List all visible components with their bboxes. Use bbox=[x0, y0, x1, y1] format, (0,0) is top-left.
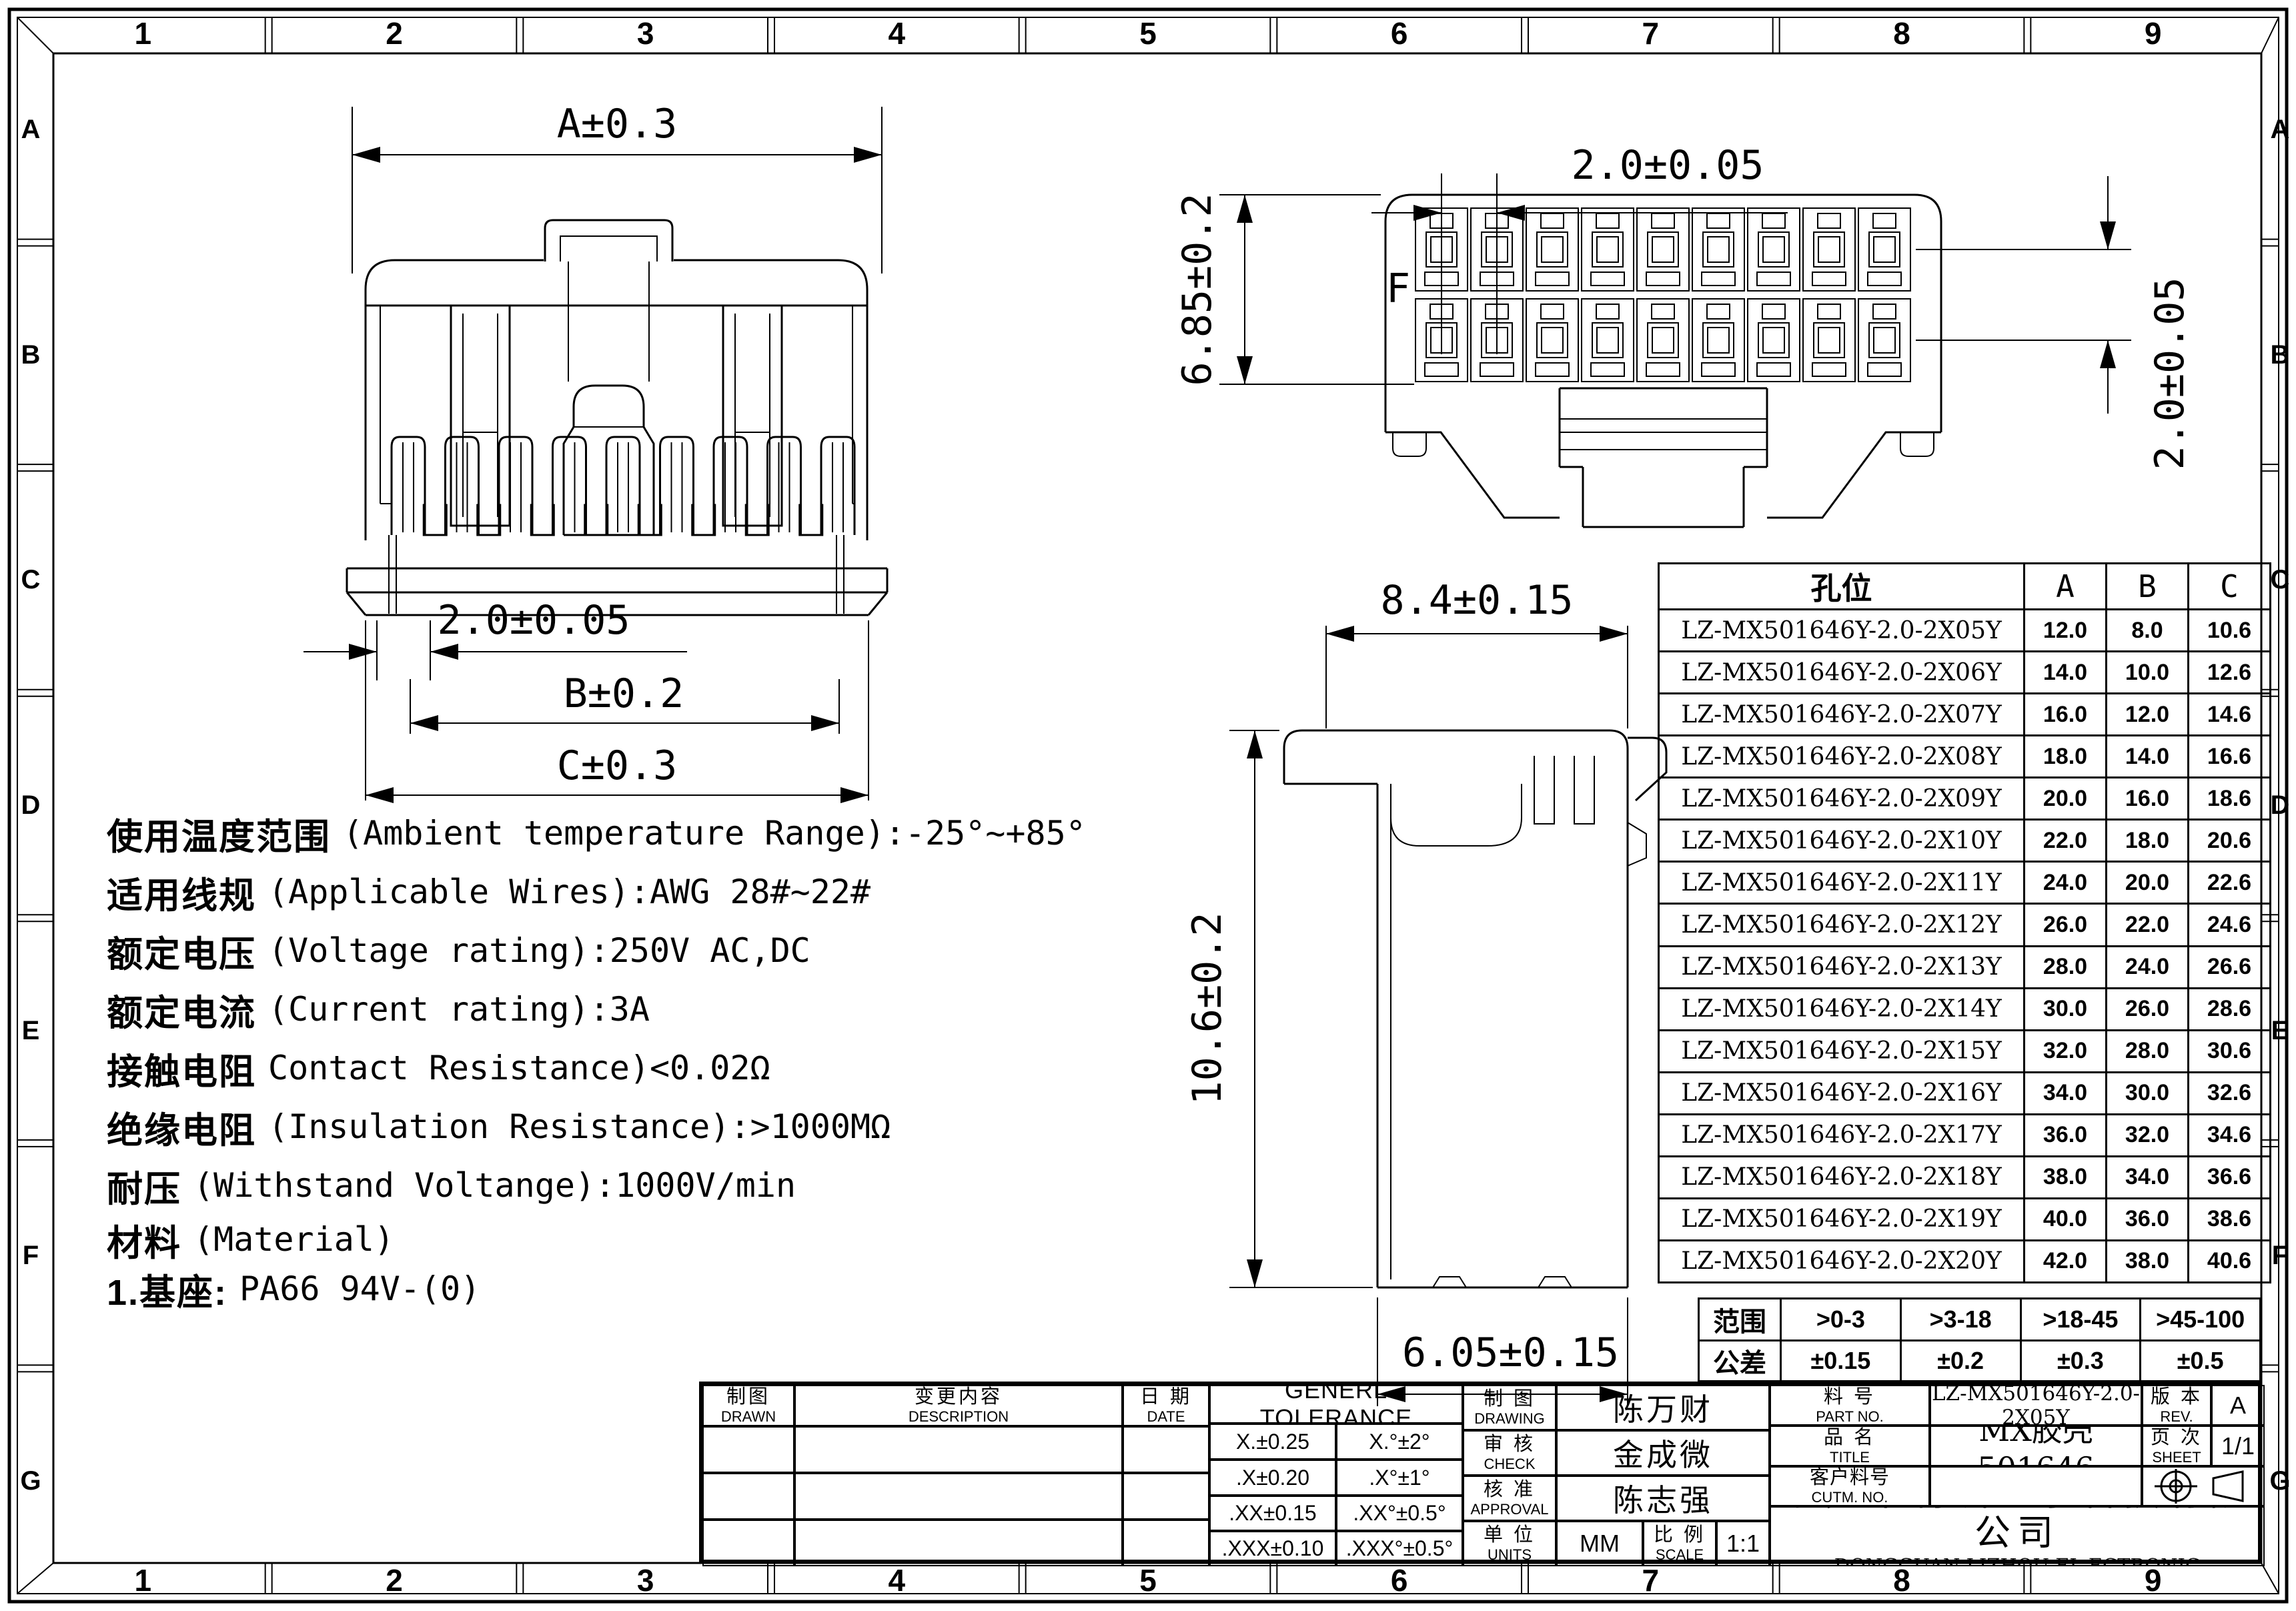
spec-label-zh: 额定电流 bbox=[107, 983, 256, 1036]
dim-b-cell: 16.0 bbox=[2107, 778, 2189, 820]
dim-c-cell: 20.6 bbox=[2189, 820, 2271, 862]
dim-c-cell: 26.6 bbox=[2189, 946, 2271, 988]
third-angle-projection-icon bbox=[2147, 1469, 2260, 1504]
dim-b-cell: 24.0 bbox=[2107, 946, 2189, 988]
side-dim-width: 8.4±0.15 bbox=[1377, 579, 1577, 622]
company-cell: 东莞市利洲电子科技有限公司 DONGGUAN LIZHOU EL ECTRONI… bbox=[1770, 1506, 2265, 1566]
spec-label-zh: 接触电阻 bbox=[107, 1042, 256, 1095]
spec-line: 1.基座:PA66 94V-(0) bbox=[107, 1264, 1187, 1313]
zone-column-label-top: 3 bbox=[520, 15, 771, 52]
drawn-header: 制图 DRAWN bbox=[702, 1385, 794, 1426]
spec-label-zh: 绝缘电阻 bbox=[107, 1101, 256, 1153]
spec-label-zh: 使用温度范围 bbox=[107, 807, 331, 860]
dim-c-cell: 28.6 bbox=[2189, 988, 2271, 1030]
part-number-cell: LZ-MX501646Y-2.0-2X09Y bbox=[1659, 778, 2025, 820]
dim-c-cell: 32.6 bbox=[2189, 1072, 2271, 1114]
zone-column-label-top: 4 bbox=[771, 15, 1023, 52]
date-header: 日 期 DATE bbox=[1123, 1385, 1209, 1426]
part-table-row: LZ-MX501646Y-2.0-2X20Y 42.0 38.0 40.6 bbox=[1659, 1240, 2271, 1282]
zone-column-label-top: 2 bbox=[269, 15, 520, 52]
scale-value: 1:1 bbox=[1716, 1521, 1770, 1566]
tolerance-value-row: 公差±0.15±0.2±0.3±0.5 bbox=[1699, 1341, 2261, 1382]
rear-view bbox=[1219, 173, 2131, 527]
dim-c-cell: 38.6 bbox=[2189, 1198, 2271, 1240]
approval-label: 核 准APPROVAL bbox=[1463, 1476, 1556, 1521]
front-dim-width: A±0.3 bbox=[517, 103, 717, 145]
spec-list: 使用温度范围(Ambient temperature Range):-25°~+… bbox=[107, 804, 1187, 1313]
part-table-row: LZ-MX501646Y-2.0-2X15Y 32.0 28.0 30.6 bbox=[1659, 1030, 2271, 1072]
front-dim-b: B±0.2 bbox=[524, 672, 724, 715]
zone-column-label-bottom: 8 bbox=[1776, 1562, 2028, 1599]
part-number-cell: LZ-MX501646Y-2.0-2X15Y bbox=[1659, 1030, 2025, 1072]
zone-column-label-bottom: 1 bbox=[17, 1562, 269, 1599]
revision-cell bbox=[1123, 1473, 1209, 1520]
zone-column-label-top: 9 bbox=[2027, 15, 2279, 52]
spec-value-en: Contact Resistance)<0.02Ω bbox=[268, 1049, 770, 1087]
dim-a-cell: 26.0 bbox=[2025, 904, 2107, 946]
dim-a-cell: 28.0 bbox=[2025, 946, 2107, 988]
part-number-cell: LZ-MX501646Y-2.0-2X17Y bbox=[1659, 1114, 2025, 1156]
drawing-name: 陈万财 bbox=[1556, 1385, 1770, 1430]
dim-c-cell: 10.6 bbox=[2189, 610, 2271, 652]
revision-cell bbox=[794, 1426, 1123, 1473]
dim-c-cell: 34.6 bbox=[2189, 1114, 2271, 1156]
approval-name: 陈志强 bbox=[1556, 1476, 1770, 1521]
spec-label-zh: 额定电压 bbox=[107, 925, 256, 977]
front-dim-pitch: 2.0±0.05 bbox=[434, 599, 634, 642]
tolerance-cell: .X±0.20 bbox=[1209, 1460, 1336, 1496]
dim-c-cell: 36.6 bbox=[2189, 1156, 2271, 1198]
spec-value-en: (Voltage rating):250V AC,DC bbox=[268, 931, 810, 970]
part-number-cell: LZ-MX501646Y-2.0-2X08Y bbox=[1659, 736, 2025, 778]
general-tolerance-title: GENERL TOLERANCE bbox=[1209, 1385, 1463, 1424]
part-number-cell: LZ-MX501646Y-2.0-2X05Y bbox=[1659, 610, 2025, 652]
spec-label-zh: 材料 bbox=[107, 1213, 181, 1266]
zone-row-label-left: A bbox=[13, 17, 48, 243]
part-number-cell: LZ-MX501646Y-2.0-2X06Y bbox=[1659, 652, 2025, 694]
part-table-header-part: 孔位 bbox=[1659, 564, 2025, 610]
description-label-zh: 变更内容 bbox=[915, 1386, 1003, 1408]
part-table-row: LZ-MX501646Y-2.0-2X12Y 26.0 22.0 24.6 bbox=[1659, 904, 2271, 946]
part-table-row: LZ-MX501646Y-2.0-2X18Y 38.0 34.0 36.6 bbox=[1659, 1156, 2271, 1198]
sheet-value: 1/1 bbox=[2211, 1426, 2265, 1466]
part-table-header-a: A bbox=[2025, 564, 2107, 610]
part-table-row: LZ-MX501646Y-2.0-2X07Y 16.0 12.0 14.6 bbox=[1659, 694, 2271, 736]
zone-column-label-top: 6 bbox=[1273, 15, 1525, 52]
projection-cell bbox=[2142, 1466, 2265, 1506]
zone-column-label-bottom: 2 bbox=[269, 1562, 520, 1599]
revision-cell bbox=[794, 1473, 1123, 1520]
company-name-zh: 东莞市利洲电子科技有限公司 bbox=[1771, 1506, 2263, 1553]
spec-line: 耐压(Withstand Voltange):1000V/min bbox=[107, 1156, 1187, 1215]
part-table-row: LZ-MX501646Y-2.0-2X17Y 36.0 32.0 34.6 bbox=[1659, 1114, 2271, 1156]
dim-a-cell: 22.0 bbox=[2025, 820, 2107, 862]
part-table-row: LZ-MX501646Y-2.0-2X19Y 40.0 36.0 38.6 bbox=[1659, 1198, 2271, 1240]
zone-row-label-right: D bbox=[2263, 693, 2296, 919]
tolerance-cell: ±0.5 bbox=[2141, 1341, 2261, 1382]
side-dim-height: 10.6±0.2 bbox=[1186, 895, 1229, 1122]
part-table-row: LZ-MX501646Y-2.0-2X08Y 18.0 14.0 16.6 bbox=[1659, 736, 2271, 778]
dim-c-cell: 22.6 bbox=[2189, 862, 2271, 904]
zone-column-label-bottom: 6 bbox=[1273, 1562, 1525, 1599]
spec-label-zh: 1.基座: bbox=[107, 1263, 227, 1315]
spec-value-en: (Current rating):3A bbox=[268, 990, 650, 1029]
part-number-cell: LZ-MX501646Y-2.0-2X13Y bbox=[1659, 946, 2025, 988]
scale-label: 比 例SCALE bbox=[1643, 1521, 1716, 1566]
drawing-label: 制 图DRAWING bbox=[1463, 1385, 1556, 1430]
zone-column-label-top: 5 bbox=[1023, 15, 1274, 52]
customer-no-label: 客户料号CUTM. NO. bbox=[1770, 1466, 1930, 1506]
dim-a-cell: 20.0 bbox=[2025, 778, 2107, 820]
part-number-cell: LZ-MX501646Y-2.0-2X18Y bbox=[1659, 1156, 2025, 1198]
tolerance-cell: ±0.15 bbox=[1781, 1341, 1901, 1382]
part-number-cell: LZ-MX501646Y-2.0-2X12Y bbox=[1659, 904, 2025, 946]
dim-a-cell: 32.0 bbox=[2025, 1030, 2107, 1072]
part-number-cell: LZ-MX501646Y-2.0-2X10Y bbox=[1659, 820, 2025, 862]
spec-line: 材料(Material) bbox=[107, 1215, 1187, 1264]
dim-b-cell: 14.0 bbox=[2107, 736, 2189, 778]
rev-value: A bbox=[2211, 1385, 2265, 1426]
part-number-cell: LZ-MX501646Y-2.0-2X14Y bbox=[1659, 988, 2025, 1030]
tolerance-cell: .XX°±0.5° bbox=[1336, 1496, 1463, 1531]
zone-column-label-top: 8 bbox=[1776, 15, 2028, 52]
part-table-header-b: B bbox=[2107, 564, 2189, 610]
zone-column-label-top: 7 bbox=[1525, 15, 1776, 52]
drawing-sheet: A±0.3 2.0±0.05 B±0.2 C±0.3 2.0±0.05 6.85… bbox=[0, 0, 2296, 1611]
spec-line: 额定电压(Voltage rating):250V AC,DC bbox=[107, 921, 1187, 980]
zone-row-label-right: B bbox=[2263, 243, 2296, 468]
general-tolerance-label: GENERL TOLERANCE bbox=[1211, 1385, 1462, 1424]
range-cell: >0-3 bbox=[1781, 1299, 1901, 1341]
rear-dim-pitch-h: 2.0±0.05 bbox=[1568, 144, 1768, 187]
dim-c-cell: 14.6 bbox=[2189, 694, 2271, 736]
spec-value-en: (Withstand Voltange):1000V/min bbox=[193, 1166, 796, 1205]
zone-row-label-right: C bbox=[2263, 468, 2296, 693]
dim-b-cell: 30.0 bbox=[2107, 1072, 2189, 1114]
front-contact-teeth bbox=[392, 437, 854, 535]
part-table-row: LZ-MX501646Y-2.0-2X10Y 22.0 18.0 20.6 bbox=[1659, 820, 2271, 862]
tolerance-cell: ±0.2 bbox=[1900, 1341, 2021, 1382]
tolerance-cell: .XX±0.15 bbox=[1209, 1496, 1336, 1531]
range-label: 范围 bbox=[1699, 1299, 1781, 1341]
part-number-cell: LZ-MX501646Y-2.0-2X11Y bbox=[1659, 862, 2025, 904]
revision-cell bbox=[1123, 1520, 1209, 1566]
zone-column-label-bottom: 7 bbox=[1525, 1562, 1776, 1599]
description-label-en: DESCRIPTION bbox=[909, 1408, 1009, 1426]
spec-line: 接触电阻Contact Resistance)<0.02Ω bbox=[107, 1039, 1187, 1097]
range-cell: >45-100 bbox=[2141, 1299, 2261, 1341]
part-table-row: LZ-MX501646Y-2.0-2X14Y 30.0 26.0 28.6 bbox=[1659, 988, 2271, 1030]
revision-cell bbox=[794, 1520, 1123, 1566]
dim-a-cell: 12.0 bbox=[2025, 610, 2107, 652]
tolerance-cell: X.°±2° bbox=[1336, 1424, 1463, 1460]
dim-a-cell: 30.0 bbox=[2025, 988, 2107, 1030]
title-value: MX胶壳 501646 bbox=[1930, 1426, 2142, 1466]
check-label: 审 核CHECK bbox=[1463, 1430, 1556, 1476]
dim-b-cell: 32.0 bbox=[2107, 1114, 2189, 1156]
dim-b-cell: 36.0 bbox=[2107, 1198, 2189, 1240]
part-number-cell: LZ-MX501646Y-2.0-2X20Y bbox=[1659, 1240, 2025, 1282]
revision-cell bbox=[702, 1473, 794, 1520]
units-label: 单 位UNITS bbox=[1463, 1521, 1556, 1566]
dim-c-cell: 12.6 bbox=[2189, 652, 2271, 694]
dim-a-cell: 18.0 bbox=[2025, 736, 2107, 778]
part-table-row: LZ-MX501646Y-2.0-2X05Y 12.0 8.0 10.6 bbox=[1659, 610, 2271, 652]
rear-dim-height: 6.85±0.2 bbox=[1176, 176, 1219, 403]
dim-b-cell: 18.0 bbox=[2107, 820, 2189, 862]
spec-line: 使用温度范围(Ambient temperature Range):-25°~+… bbox=[107, 804, 1187, 863]
part-table-header-row: 孔位 A B C bbox=[1659, 564, 2271, 610]
dim-a-cell: 40.0 bbox=[2025, 1198, 2107, 1240]
spec-value-en: (Insulation Resistance):>1000MΩ bbox=[268, 1107, 891, 1146]
tolerance-range-row: 范围>0-3>3-18>18-45>45-100 bbox=[1699, 1299, 2261, 1341]
dim-b-cell: 34.0 bbox=[2107, 1156, 2189, 1198]
dim-a-cell: 38.0 bbox=[2025, 1156, 2107, 1198]
dim-c-cell: 16.6 bbox=[2189, 736, 2271, 778]
date-label-zh: 日 期 bbox=[1140, 1386, 1192, 1408]
spec-label-zh: 耐压 bbox=[107, 1159, 181, 1212]
zone-row-label-left: B bbox=[13, 243, 48, 468]
dim-a-cell: 24.0 bbox=[2025, 862, 2107, 904]
drawn-label-en: DRAWN bbox=[721, 1408, 776, 1426]
zone-column-label-bottom: 4 bbox=[771, 1562, 1023, 1599]
tolerance-label: 公差 bbox=[1699, 1341, 1781, 1382]
zone-row-label-left: E bbox=[13, 918, 48, 1143]
zone-row-label-right: F bbox=[2263, 1143, 2296, 1369]
check-name: 金成微 bbox=[1556, 1430, 1770, 1476]
rear-cavity-label: F bbox=[1386, 265, 1410, 312]
dim-a-cell: 14.0 bbox=[2025, 652, 2107, 694]
rear-cavity-grid bbox=[1415, 208, 1910, 382]
part-table-header-c: C bbox=[2189, 564, 2271, 610]
side-dim-bottom: 6.05±0.15 bbox=[1402, 1331, 1602, 1374]
tolerance-range-table: 范围>0-3>3-18>18-45>45-100 公差±0.15±0.2±0.3… bbox=[1698, 1297, 2261, 1382]
spec-label-zh: 适用线规 bbox=[107, 866, 256, 919]
zone-row-label-left: D bbox=[13, 693, 48, 919]
dim-b-cell: 20.0 bbox=[2107, 862, 2189, 904]
front-dim-c: C±0.3 bbox=[517, 744, 717, 787]
part-table-row: LZ-MX501646Y-2.0-2X06Y 14.0 10.0 12.6 bbox=[1659, 652, 2271, 694]
sheet-label: 页 次SHEET bbox=[2142, 1426, 2211, 1466]
zone-row-label-left: G bbox=[13, 1368, 48, 1594]
revision-cell bbox=[702, 1426, 794, 1473]
part-table: 孔位 A B C LZ-MX501646Y-2.0-2X05Y 12.0 8.0… bbox=[1658, 562, 2271, 1283]
dim-c-cell: 40.6 bbox=[2189, 1240, 2271, 1282]
zone-row-label-left: C bbox=[13, 468, 48, 693]
dim-b-cell: 26.0 bbox=[2107, 988, 2189, 1030]
spec-value-en: (Material) bbox=[193, 1220, 394, 1259]
side-view bbox=[1229, 626, 1666, 1406]
part-table-row: LZ-MX501646Y-2.0-2X13Y 28.0 24.0 26.6 bbox=[1659, 946, 2271, 988]
dim-a-cell: 42.0 bbox=[2025, 1240, 2107, 1282]
dim-b-cell: 10.0 bbox=[2107, 652, 2189, 694]
part-table-row: LZ-MX501646Y-2.0-2X11Y 24.0 20.0 22.6 bbox=[1659, 862, 2271, 904]
range-cell: >18-45 bbox=[2021, 1299, 2141, 1341]
dim-b-cell: 12.0 bbox=[2107, 694, 2189, 736]
part-number-cell: LZ-MX501646Y-2.0-2X16Y bbox=[1659, 1072, 2025, 1114]
zone-row-label-left: F bbox=[13, 1143, 48, 1369]
range-cell: >3-18 bbox=[1900, 1299, 2021, 1341]
zone-column-label-bottom: 3 bbox=[520, 1562, 771, 1599]
zone-column-label-bottom: 5 bbox=[1023, 1562, 1274, 1599]
part-number-cell: LZ-MX501646Y-2.0-2X07Y bbox=[1659, 694, 2025, 736]
dim-c-cell: 18.6 bbox=[2189, 778, 2271, 820]
revision-cell bbox=[702, 1520, 794, 1566]
rev-label: 版 本REV. bbox=[2142, 1385, 2211, 1426]
part-no-value: LZ-MX501646Y-2.0-2X05Y bbox=[1930, 1385, 2142, 1426]
part-table-row: LZ-MX501646Y-2.0-2X16Y 34.0 30.0 32.6 bbox=[1659, 1072, 2271, 1114]
revision-cell bbox=[1123, 1426, 1209, 1473]
tolerance-cell: .X°±1° bbox=[1336, 1460, 1463, 1496]
part-no-label: 料 号PART NO. bbox=[1770, 1385, 1930, 1426]
tolerance-cell: X.±0.25 bbox=[1209, 1424, 1336, 1460]
part-number-cell: LZ-MX501646Y-2.0-2X19Y bbox=[1659, 1198, 2025, 1240]
rear-dim-pitch-v: 2.0±0.05 bbox=[2149, 260, 2191, 487]
dim-c-cell: 30.6 bbox=[2189, 1030, 2271, 1072]
description-header: 变更内容 DESCRIPTION bbox=[794, 1385, 1123, 1426]
dim-b-cell: 28.0 bbox=[2107, 1030, 2189, 1072]
dim-a-cell: 16.0 bbox=[2025, 694, 2107, 736]
spec-line: 适用线规(Applicable Wires):AWG 28#~22# bbox=[107, 863, 1187, 921]
drawn-label-zh: 制图 bbox=[726, 1386, 770, 1408]
dim-b-cell: 22.0 bbox=[2107, 904, 2189, 946]
date-label-en: DATE bbox=[1147, 1408, 1185, 1426]
dim-b-cell: 8.0 bbox=[2107, 610, 2189, 652]
spec-line: 绝缘电阻(Insulation Resistance):>1000MΩ bbox=[107, 1097, 1187, 1156]
units-value: MM bbox=[1556, 1521, 1643, 1566]
dim-c-cell: 24.6 bbox=[2189, 904, 2271, 946]
customer-no-value bbox=[1930, 1466, 2142, 1506]
dim-b-cell: 38.0 bbox=[2107, 1240, 2189, 1282]
title-label: 品 名TITLE bbox=[1770, 1426, 1930, 1466]
dim-a-cell: 34.0 bbox=[2025, 1072, 2107, 1114]
zone-row-label-right: E bbox=[2263, 918, 2296, 1143]
zone-row-label-right: A bbox=[2263, 17, 2296, 243]
spec-value-en: (Applicable Wires):AWG 28#~22# bbox=[268, 873, 871, 911]
title-block: 制图 DRAWN 变更内容 DESCRIPTION 日 期 DATE GENER… bbox=[699, 1382, 2261, 1563]
spec-line: 额定电流(Current rating):3A bbox=[107, 980, 1187, 1039]
spec-value-en: PA66 94V-(0) bbox=[239, 1269, 480, 1308]
dim-a-cell: 36.0 bbox=[2025, 1114, 2107, 1156]
zone-column-label-top: 1 bbox=[17, 15, 269, 52]
zone-column-label-bottom: 9 bbox=[2027, 1562, 2279, 1599]
part-table-row: LZ-MX501646Y-2.0-2X09Y 20.0 16.0 18.6 bbox=[1659, 778, 2271, 820]
zone-row-label-right: G bbox=[2263, 1368, 2296, 1594]
tolerance-cell: ±0.3 bbox=[2021, 1341, 2141, 1382]
spec-value-en: (Ambient temperature Range):-25°~+85° bbox=[343, 814, 1086, 853]
